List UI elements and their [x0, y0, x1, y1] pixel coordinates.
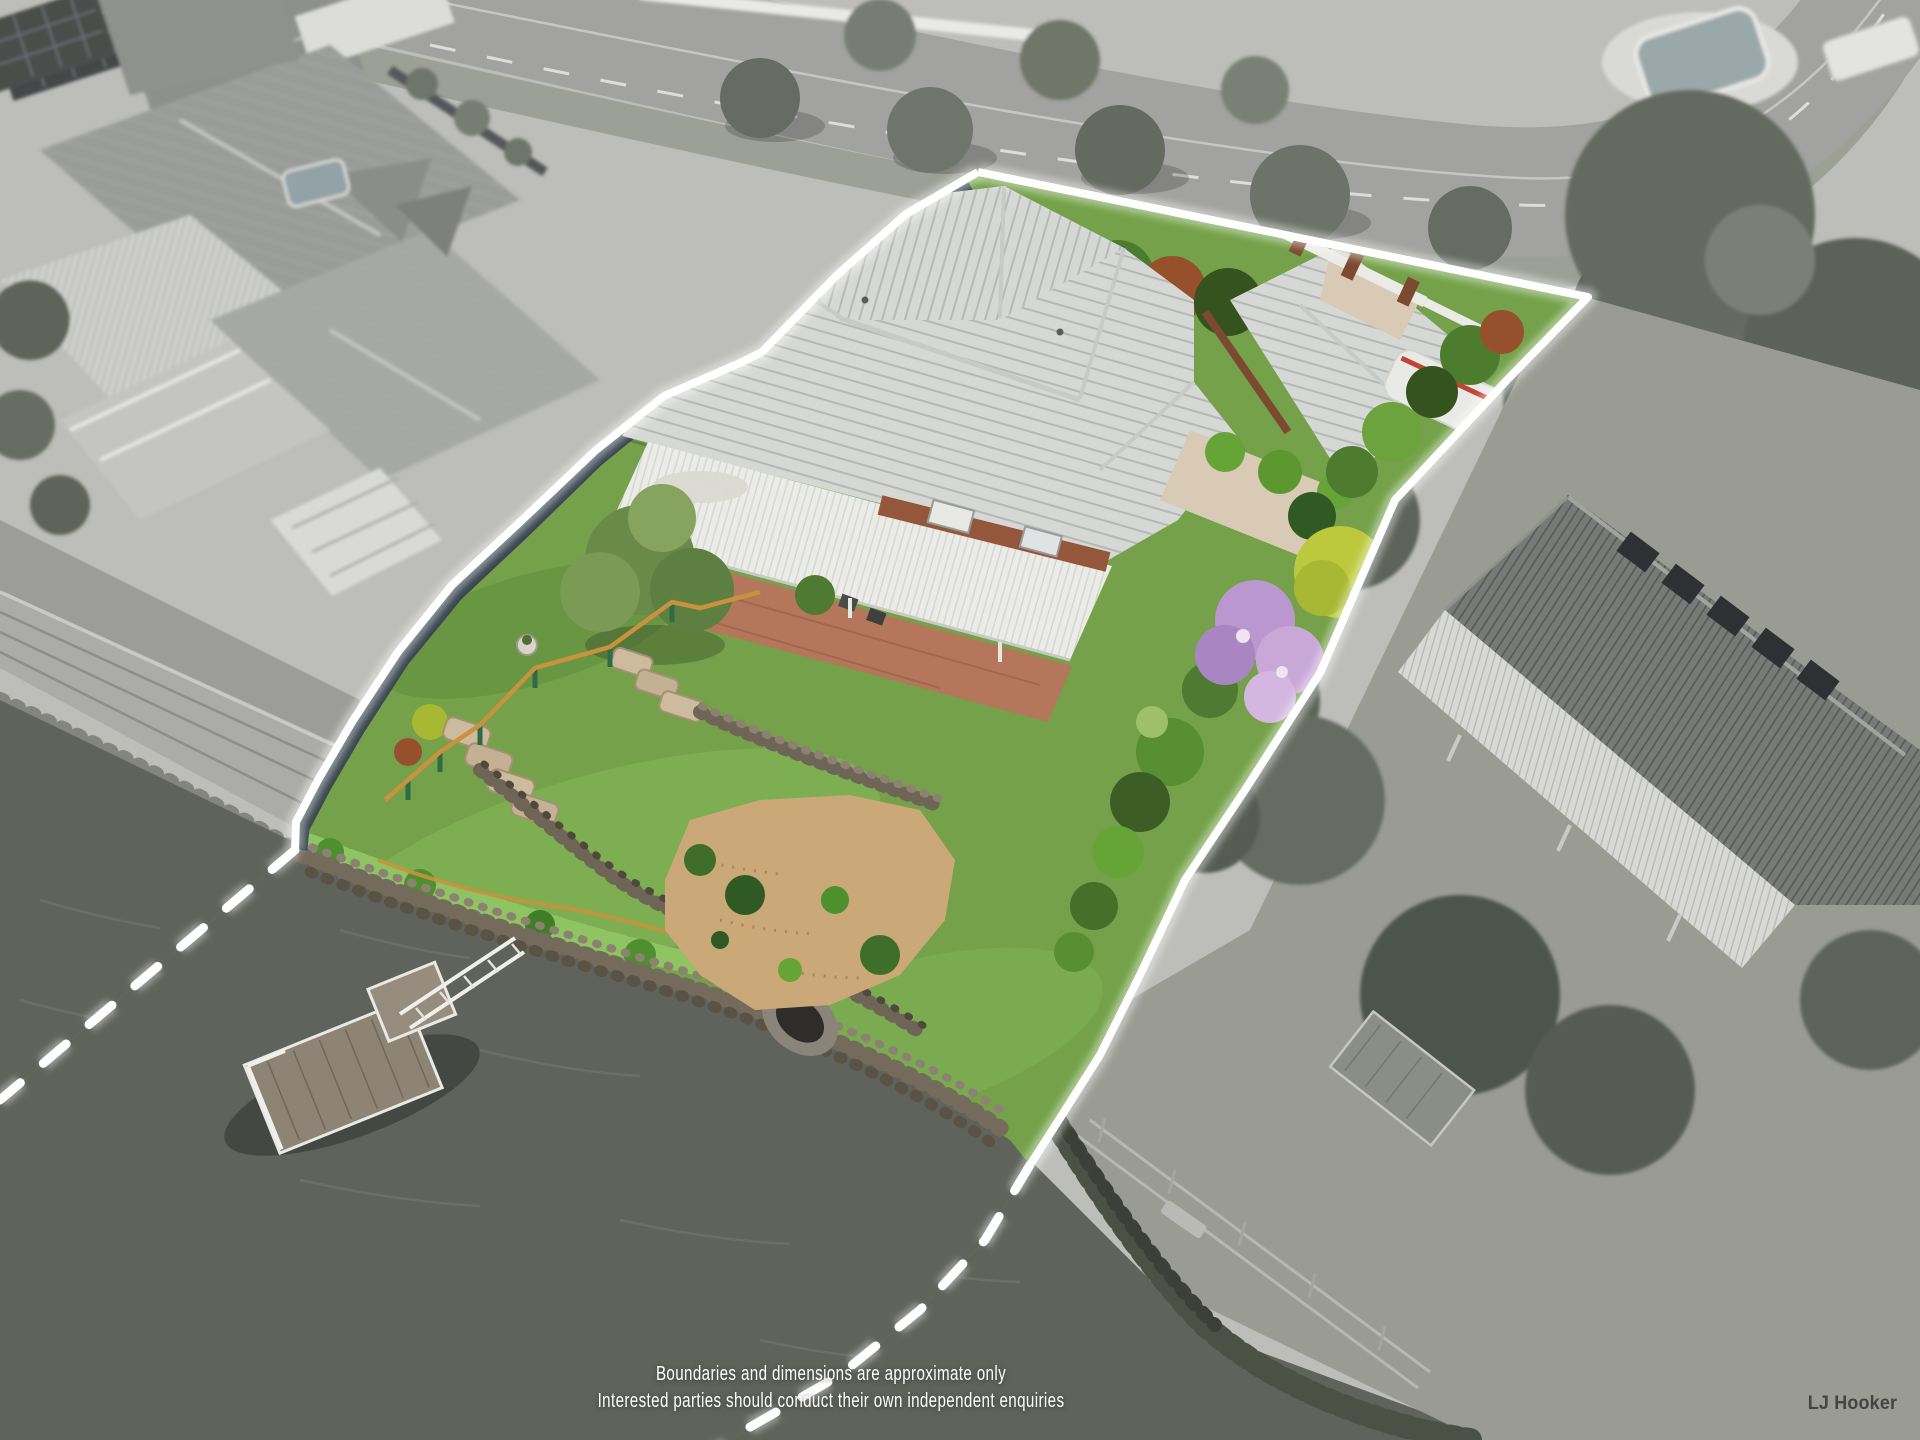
gray-tree-highlight	[1705, 205, 1815, 315]
photo-canvas	[0, 0, 1920, 1440]
frangipani-tree	[650, 548, 734, 632]
bed-shrub	[821, 886, 849, 914]
garden-shrub	[1406, 366, 1458, 418]
bed-shrub	[860, 935, 900, 975]
garden-shrub	[1092, 826, 1144, 878]
street-tree	[887, 87, 973, 173]
croton-shrub	[394, 738, 422, 766]
garden-shrub	[1326, 446, 1378, 498]
street-tree	[1075, 105, 1165, 195]
bed-shrub	[711, 931, 729, 949]
garden-shrub	[1054, 932, 1094, 972]
gray-tree	[1525, 1005, 1695, 1175]
palm	[504, 138, 532, 166]
disclaimer-line-1: Boundaries and dimensions are approximat…	[598, 1360, 1065, 1387]
far-tree	[1221, 56, 1289, 124]
disclaimer-line-2: Interested parties should conduct their …	[598, 1387, 1065, 1414]
roof-vent	[862, 297, 869, 304]
palm	[454, 100, 490, 136]
palm-shrub	[795, 575, 835, 615]
roof-vent	[1057, 329, 1064, 336]
far-tree	[1020, 20, 1100, 100]
hedge-ball	[1205, 432, 1245, 472]
far-tree	[844, 0, 916, 71]
blossom-highlight	[1236, 629, 1250, 643]
gray-tree	[30, 475, 90, 535]
bed-shrub	[684, 844, 716, 876]
brand-watermark: LJ Hooker	[1808, 1392, 1897, 1415]
hedge-ball	[1258, 450, 1302, 494]
frangipani-tree	[560, 552, 640, 632]
bed-shrub	[725, 875, 765, 915]
street-tree	[720, 58, 800, 138]
aerial-property-photo: Boundaries and dimensions are approximat…	[0, 0, 1920, 1440]
garden-shrub-red	[1480, 310, 1524, 354]
garden-shrub	[1362, 402, 1422, 462]
garden-shrub	[1070, 882, 1118, 930]
pot-plant	[522, 635, 532, 645]
garden-shrub	[1110, 772, 1170, 832]
palm	[406, 68, 438, 100]
street-tree	[1428, 186, 1512, 270]
disclaimer: Boundaries and dimensions are approximat…	[516, 1360, 1147, 1414]
blossom-highlight	[1276, 666, 1288, 678]
garden-shrub	[1136, 706, 1168, 738]
bed-shrub	[778, 958, 802, 982]
frangipani-tree	[628, 484, 696, 552]
